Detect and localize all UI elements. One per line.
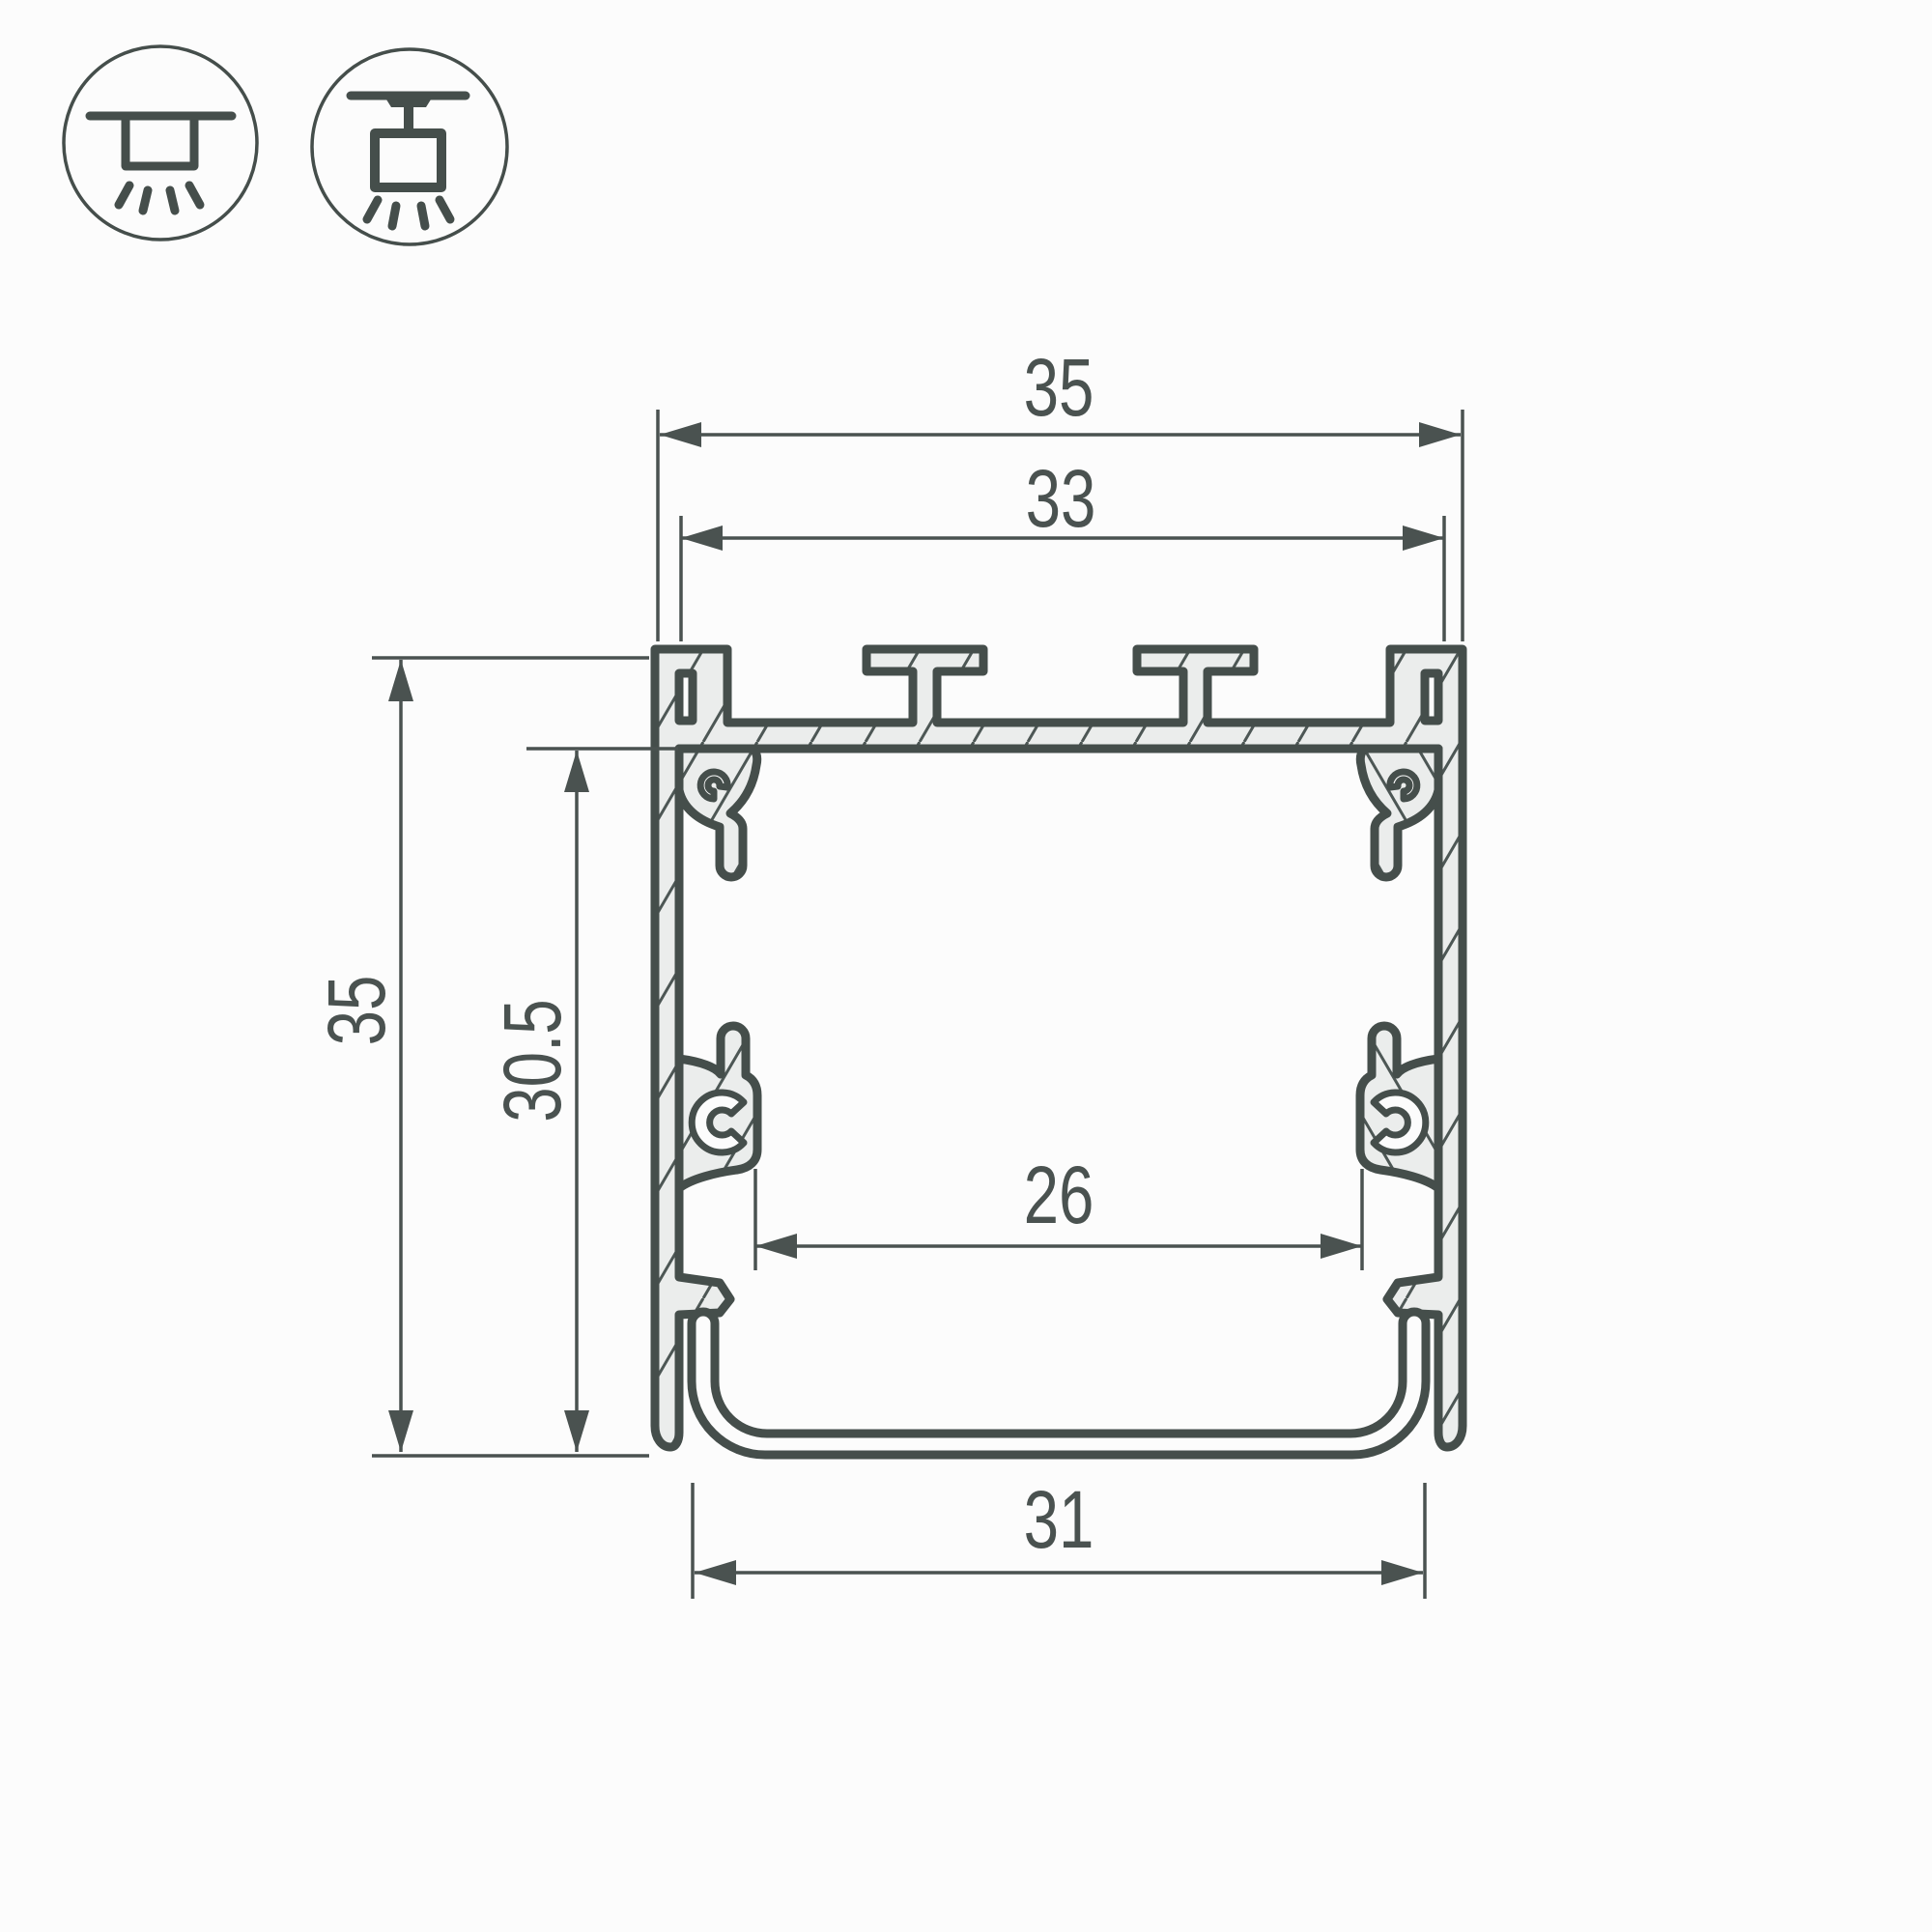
profile-cross-section: [655, 649, 1463, 1455]
dimension-inner-height: 30.5: [487, 749, 678, 1452]
dimension-value: 33: [1026, 453, 1096, 544]
technical-drawing-canvas: 35 33 35 30.5: [0, 0, 1932, 1932]
dimension-value: 26: [1024, 1150, 1094, 1240]
dimension-overall-height: 35: [311, 658, 649, 1456]
dimension-inner-bottom-width: 26: [755, 1150, 1362, 1270]
light-rays-icon: [119, 185, 200, 211]
profile-body: [655, 649, 1463, 1447]
screw-bosses-mirrored: [1360, 749, 1438, 1188]
dimension-annotations: 35 33 35 30.5: [311, 342, 1463, 1599]
light-rays-icon: [367, 200, 450, 226]
dimension-value: 31: [1024, 1474, 1094, 1565]
dimension-value: 30.5: [487, 999, 578, 1122]
surface-mount-icon: [64, 46, 257, 240]
screw-bosses: [679, 749, 757, 1188]
drawing-page: 35 33 35 30.5: [0, 0, 1932, 1932]
pendant-mount-icon: [312, 49, 507, 244]
dimension-bottom-width: 31: [693, 1474, 1425, 1599]
dimension-value: 35: [1024, 342, 1094, 433]
mount-legend: [64, 46, 507, 244]
diffuser-cover: [692, 1312, 1426, 1455]
dimension-value: 35: [311, 976, 402, 1046]
dimension-inner-top-width: 33: [681, 453, 1444, 641]
